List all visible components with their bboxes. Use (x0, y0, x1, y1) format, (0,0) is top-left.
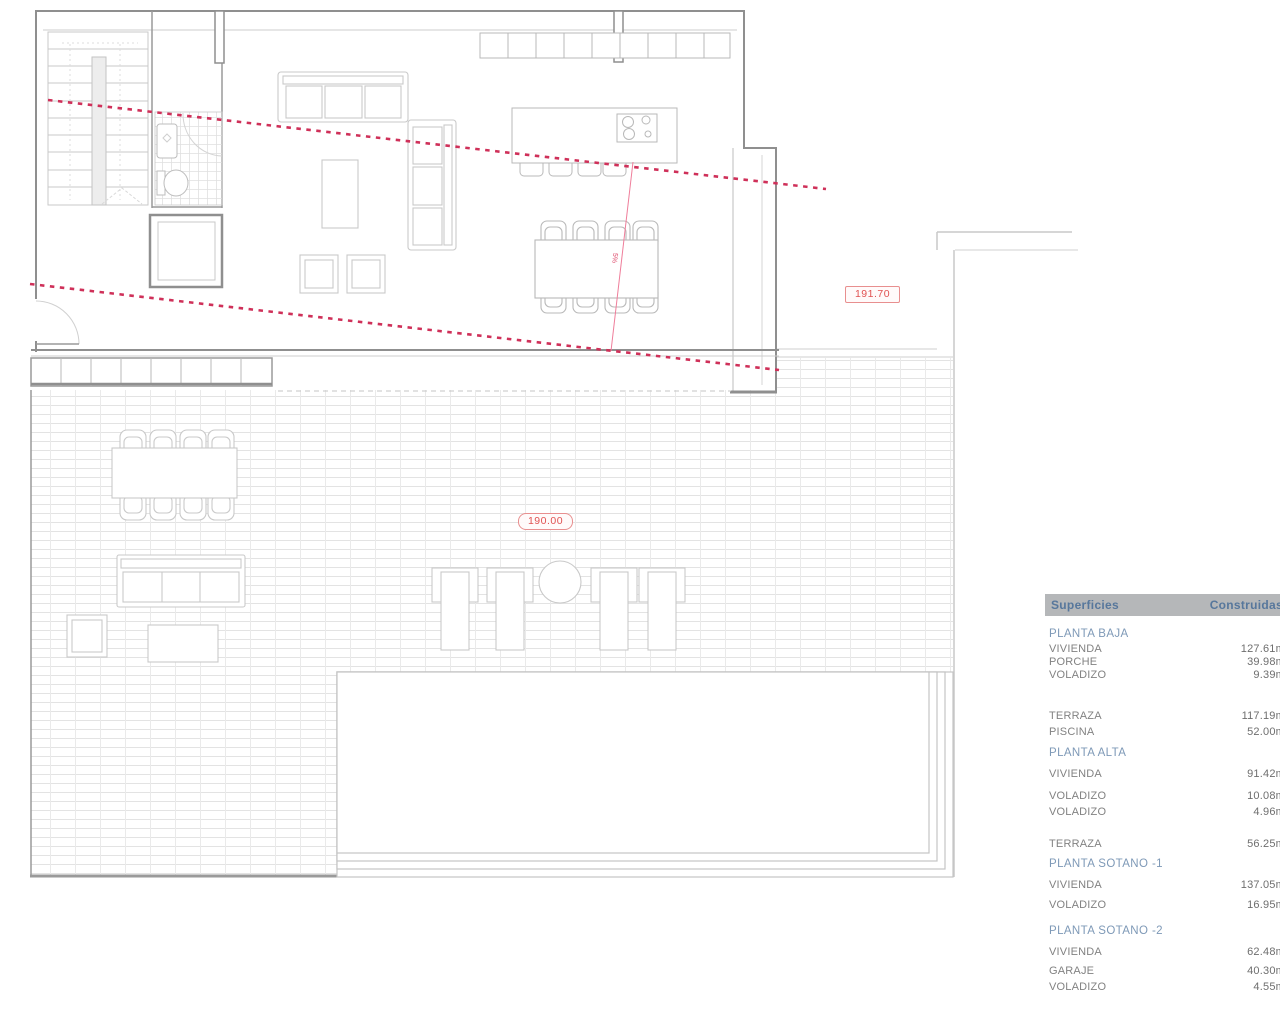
table-row: VIVIENDA62.48m (1045, 946, 1280, 959)
sofa-horizontal (278, 72, 408, 122)
entry-door (36, 301, 79, 344)
sink (157, 124, 177, 158)
outdoor-table (112, 448, 237, 498)
table-row: GARAJE40.30m (1045, 965, 1280, 978)
outdoor-coffee-table (148, 625, 218, 662)
outdoor-sofa (117, 555, 245, 607)
table-row: PORCHE39.98m (1045, 656, 1280, 669)
table-row: PISCINA52.00m (1045, 726, 1280, 739)
pool-side-table (539, 561, 581, 603)
table-row: PLANTA SOTANO -2 (1045, 925, 1280, 938)
table-row: VIVIENDA127.61m (1045, 643, 1280, 656)
indoor-dining-set (535, 221, 658, 313)
surface-table-header-col2: Construidas (1210, 598, 1280, 612)
table-row: PLANTA SOTANO -1 (1045, 858, 1280, 871)
table-row: VOLADIZO4.96m (1045, 806, 1280, 819)
outdoor-dining-set (112, 430, 237, 520)
staircase (48, 32, 148, 205)
table-row: VOLADIZO4.55m (1045, 981, 1280, 994)
kitchen-cabinets (480, 33, 730, 58)
surface-table-header-col1: Superficies (1051, 598, 1119, 612)
coffee-table (322, 160, 358, 228)
red-dashed-line-lower (30, 284, 779, 370)
floor-plan-canvas: 5% 191.70 190.00 Superficies Construidas… (0, 0, 1280, 1024)
table-row: TERRAZA56.25m (1045, 838, 1280, 851)
elevation-label-upper: 191.70 (845, 286, 900, 303)
table-row: PLANTA ALTA (1045, 747, 1280, 760)
table-row: VIVIENDA91.42m (1045, 768, 1280, 781)
outdoor-armchair (67, 615, 107, 657)
table-row: VOLADIZO9.39m (1045, 669, 1280, 682)
elevation-label-terrace: 190.00 (518, 513, 573, 530)
surface-table-header: Superficies Construidas (1045, 594, 1280, 616)
table-row: PLANTA BAJA (1045, 628, 1280, 641)
slope-note: 5% (610, 253, 618, 264)
utility-box (150, 215, 222, 287)
bathroom (155, 112, 222, 205)
ottomans (300, 255, 385, 293)
toilet (157, 170, 188, 196)
table-row: VOLADIZO10.08m (1045, 790, 1280, 803)
table-row: TERRAZA117.19m (1045, 710, 1280, 723)
facade-planter (31, 358, 272, 386)
living-room-furniture (278, 72, 456, 293)
surface-table: Superficies Construidas PLANTA BAJA VIVI… (1045, 594, 1280, 1014)
table-row: VOLADIZO16.95m (1045, 899, 1280, 912)
dining-table (535, 240, 658, 298)
swimming-pool (337, 672, 953, 877)
sofa-vertical (408, 120, 456, 250)
table-row: VIVIENDA137.05m (1045, 879, 1280, 892)
